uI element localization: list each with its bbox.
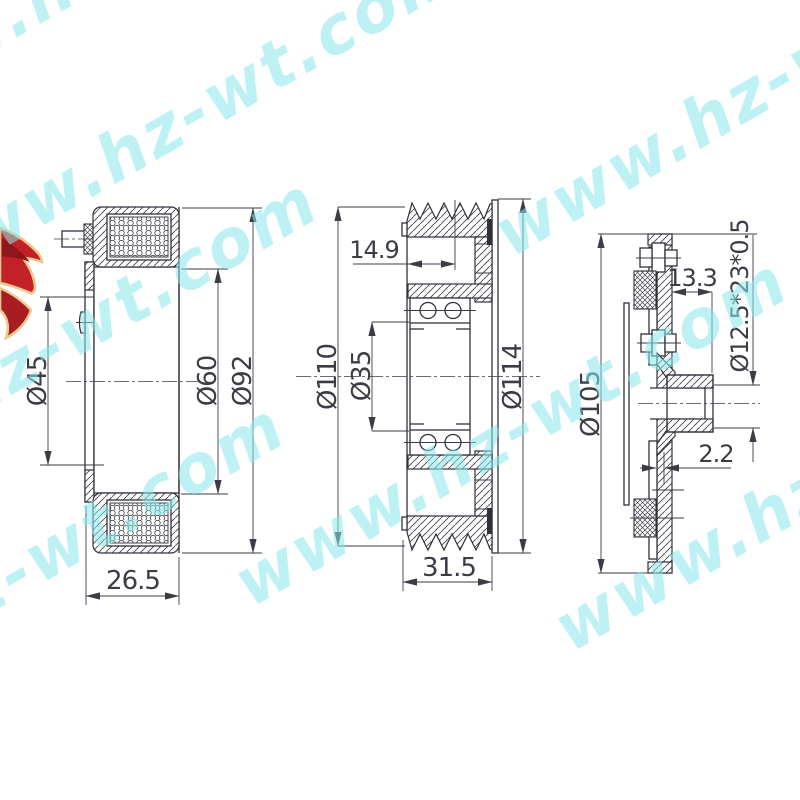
- dim-label-groove-offset: 14.9: [349, 236, 398, 264]
- clutch-assembly-drawing: Ø45 Ø60 Ø92 26.5: [0, 0, 800, 800]
- dim-label-flange-diameter: Ø114: [498, 343, 528, 410]
- boss-wall-top: [667, 375, 713, 388]
- dim-label-pulley-width: 31.5: [422, 553, 476, 583]
- dim-label-bore-diameter: Ø35: [347, 351, 377, 402]
- dim-label-coil-outer-diameter: Ø92: [228, 356, 258, 407]
- boss-wall-bottom: [667, 419, 713, 432]
- disc-cap-bottom: [648, 562, 672, 573]
- dim-label-air-gap: 2.2: [698, 440, 733, 468]
- rivet-top-washer-left: [640, 248, 652, 267]
- rivet-top: [652, 243, 665, 272]
- coil-mount-plate: [85, 262, 94, 502]
- coil-housing-body: [94, 267, 179, 493]
- plate-hatch-top: [85, 262, 94, 290]
- leaf-spring-plate: [624, 303, 629, 505]
- bearing-seat-top: [408, 284, 492, 298]
- dim-label-hub-outer-diameter: Ø105: [576, 371, 606, 437]
- damper-top: [634, 271, 656, 309]
- bearing-seat-bottom: [408, 455, 492, 469]
- plate-hatch-bottom: [85, 470, 94, 502]
- front-lip-top: [402, 223, 407, 236]
- dim-label-groove-diameter: Ø110: [313, 344, 343, 410]
- front-lip-bottom: [402, 517, 407, 530]
- snap-ring-top: [487, 219, 492, 245]
- coil-winding-top: [110, 217, 168, 257]
- dim-label-coil-depth: 26.5: [106, 566, 160, 596]
- dim-label-hub-depth: 13.3: [667, 264, 716, 292]
- technical-drawing-page: Ø45 Ø60 Ø92 26.5: [0, 0, 800, 800]
- dim-label-spline-spec: Ø12.5*23*0.5: [726, 219, 754, 372]
- dim-label-coil-mid-diameter: Ø60: [193, 356, 223, 407]
- dim-label-coil-inner-diameter: Ø45: [23, 356, 53, 407]
- coil-winding-bottom: [110, 503, 168, 543]
- snap-ring-bottom: [487, 508, 492, 534]
